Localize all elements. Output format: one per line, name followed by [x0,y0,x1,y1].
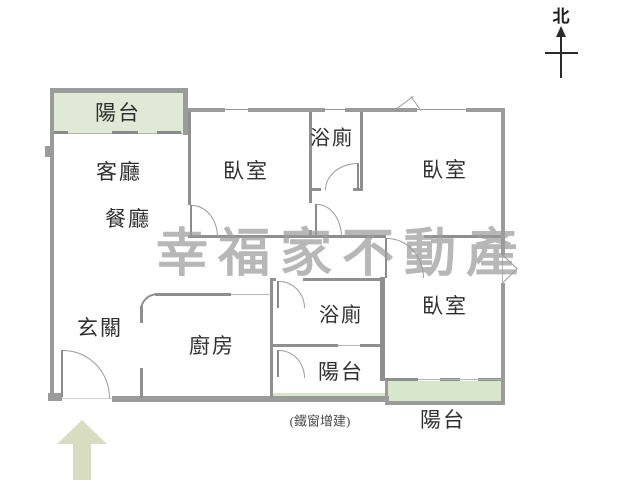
window [225,108,248,112]
wall [112,396,389,402]
bath-door-arc [325,163,358,190]
room-label-entry: 玄關 [77,312,123,342]
wall [270,344,338,347]
wall [50,88,54,398]
room-label-bedroom-top-mid: 臥室 [223,155,269,185]
north-arrow-shaft [560,36,562,78]
window [325,108,345,112]
window [417,108,466,112]
bath-window [338,345,360,346]
balcony-door-arc [279,350,305,378]
sliding-door-line [418,379,501,380]
room-label-bedroom-bottom-right: 臥室 [422,290,468,320]
iron-window-annotation: (鐵窗增建) [290,411,351,430]
entry-threshold [62,398,112,399]
wall [140,368,143,398]
room-label-living: 客廳 [96,156,142,186]
room-label-balcony-mid: 陽台 [318,356,364,386]
room-label-bedroom-top-right: 臥室 [422,154,468,184]
north-arrow-crossbar [545,52,578,54]
wall [188,112,191,205]
wall [385,378,388,401]
room-label-bath-top: 浴廁 [310,122,354,151]
wall [380,277,385,381]
wall [386,378,418,381]
wall [45,146,54,157]
room-label-dining: 餐廳 [105,203,151,233]
entrance-arrow-shaft [73,443,91,480]
sliding-door-panel [157,131,181,134]
kitchen-opening [231,294,271,295]
wall [155,293,231,296]
wall [48,393,62,401]
room-label-balcony-top: 陽台 [95,97,141,127]
room-label-kitchen: 廚房 [189,330,235,360]
room-label-balcony-bottom: 陽台 [420,404,466,434]
north-label: 北 [550,2,572,27]
kitchen-corner-wall [140,293,158,310]
wall [360,112,363,190]
wall [50,88,188,93]
entry-door-arc [63,350,110,398]
watermark: 幸福家不動產 [156,211,528,286]
sliding-door-panel [112,131,138,134]
room-label-bath-bottom: 浴廁 [319,299,363,328]
balcony-bottom-fill [388,381,501,401]
wall [309,188,321,191]
entrance-arrow-head [57,420,107,444]
wall [360,344,382,347]
wall [270,278,273,398]
floor-plan: 幸福家不動產 [0,0,640,480]
sliding-door-panel [54,131,68,134]
